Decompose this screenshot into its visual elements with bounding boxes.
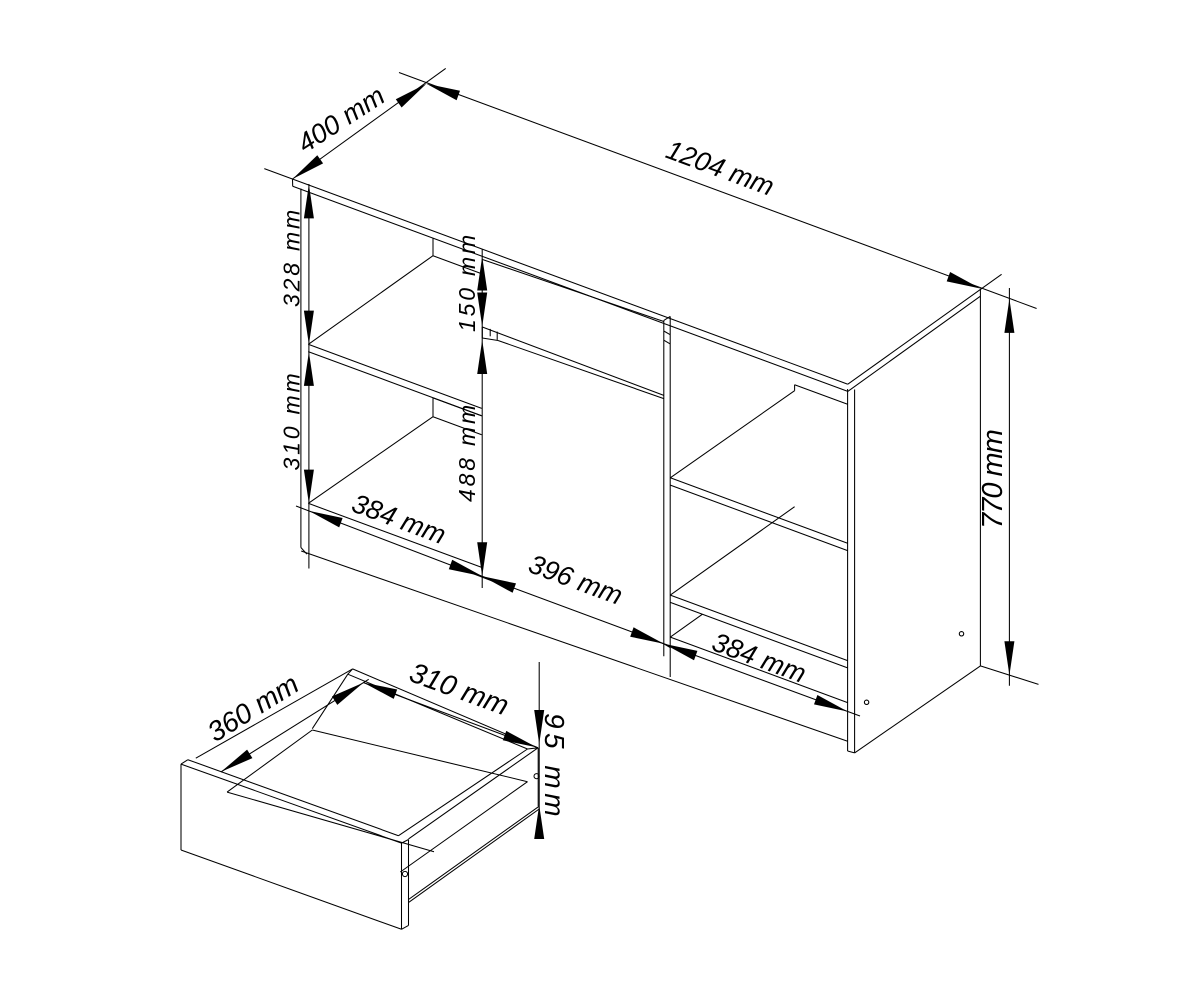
- svg-text:328 mm: 328 mm: [279, 207, 305, 307]
- svg-text:770 mm: 770 mm: [977, 430, 1009, 529]
- svg-text:95 mm: 95 mm: [539, 713, 570, 821]
- svg-text:150 mm: 150 mm: [454, 232, 480, 332]
- svg-text:310 mm: 310 mm: [279, 371, 305, 471]
- svg-text:488 mm: 488 mm: [454, 402, 480, 502]
